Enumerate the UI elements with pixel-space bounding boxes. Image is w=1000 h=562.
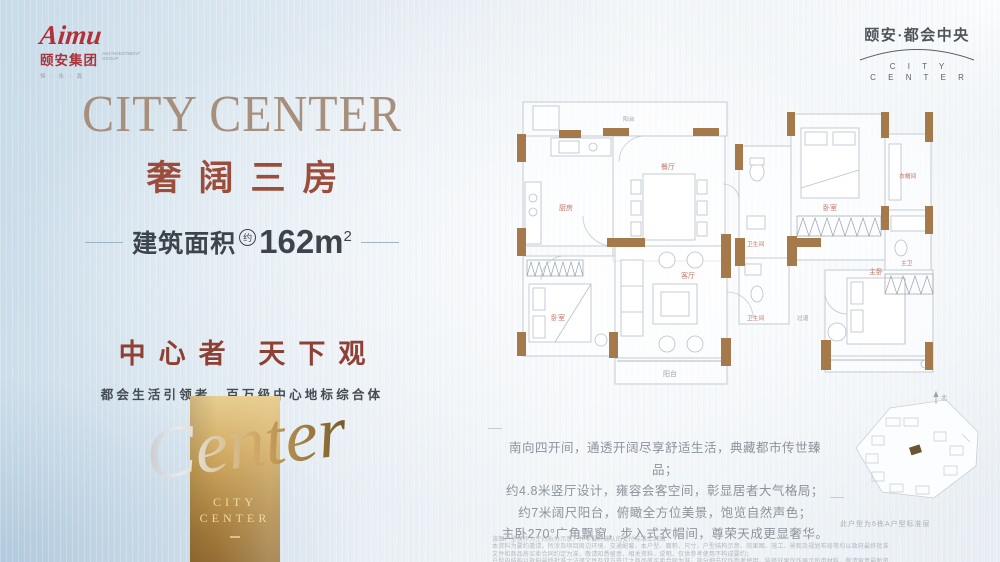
- project-name: 颐安·都会中央: [856, 24, 978, 45]
- svg-text:北: 北: [941, 394, 947, 402]
- room-label-master: 主卧: [869, 267, 883, 276]
- area-value: 162m: [259, 223, 343, 261]
- room-label-balcony: 阳台: [663, 369, 677, 378]
- divider-tick: [488, 428, 502, 429]
- disclaimer: 该图户型仅作为空间拆分示意，并非最终确认的交付标准工具图 本资料为要约邀请，所涉…: [492, 537, 894, 562]
- room-label-kitchen: 厨房: [559, 203, 573, 212]
- area-superscript: 2: [344, 228, 352, 245]
- gold-dash: [230, 536, 240, 538]
- room-label-bedroom2: 卧室: [823, 203, 837, 212]
- room-label-bedroom3: 卧室: [551, 313, 565, 322]
- siteplan-caption: 此户型为6栋A户型标准层: [840, 519, 931, 529]
- area-badge: 建筑面积 约 162m 2: [82, 223, 402, 261]
- project-name-en-1: C I T Y: [861, 61, 978, 72]
- approx-circle: 约: [239, 229, 256, 246]
- feature-line: 约7米阔尺阳台，俯瞰全方位美景，饱览自然声色；: [498, 503, 832, 525]
- arc-icon: [858, 47, 976, 61]
- disclaimer-line: 本资料为要约邀请，所涉及项目周边环境、交通配套、本户型、面积、尺寸、户型结构示意…: [492, 544, 894, 559]
- hero-subtitle: 奢阔三房: [82, 150, 402, 201]
- area-label: 建筑面积: [132, 224, 236, 260]
- project-name-en-2: C E N T E R: [861, 72, 978, 83]
- room-label-masterbath: 主卫: [901, 259, 913, 267]
- gold-card-text: CITY CENTER: [190, 494, 280, 538]
- hero-block: CITY CENTER 奢阔三房 建筑面积 约 162m 2: [82, 88, 402, 261]
- slogan: 中心者 天下观: [82, 332, 402, 371]
- feature-list: 南向四开间，通透开阔尽享舒适生活，典藏都市传世臻品； 约4.8米竖厅设计，雍容会…: [498, 438, 832, 546]
- siteplan-diagram: 北: [838, 390, 993, 516]
- badge-line-left: [85, 242, 123, 243]
- brand-name: 颐安集团: [40, 49, 98, 69]
- room-label-living: 客厅: [681, 271, 695, 280]
- room-label-dining: 餐厅: [661, 162, 675, 171]
- brand-script-logo: Aimu: [39, 22, 192, 48]
- floorplan-diagram: 阳台 厨房 餐厅 卫生间 卧室 衣帽间 主卫 卧室 客厅 阳台 过道 卫生间 主…: [495, 88, 935, 388]
- hero-title: CITY CENTER: [82, 86, 402, 144]
- feature-line: 南向四开间，通透开阔尽享舒适生活，典藏都市传世臻品；: [498, 438, 832, 481]
- project-logo: 颐安·都会中央 C I T Y C E N T E R: [856, 24, 978, 83]
- room-label-hall: 阳台: [623, 115, 635, 123]
- gold-card: CITY CENTER: [190, 396, 280, 562]
- brand-logo: Aimu 颐安集团 AIM INVESTMENTGROUP 恒 · 永 · 真: [40, 22, 190, 80]
- brand-tagline: 恒 · 永 · 真: [40, 72, 190, 80]
- poster: Aimu 颐安集团 AIM INVESTMENTGROUP 恒 · 永 · 真 …: [0, 0, 1000, 562]
- room-label-bath2: 卫生间: [747, 314, 765, 322]
- feature-line: 约4.8米竖厅设计，雍容会客空间，彰显居者大气格局；: [498, 481, 832, 503]
- brand-subtext: AIM INVESTMENTGROUP: [102, 51, 140, 61]
- room-label-closet: 衣帽间: [899, 172, 917, 180]
- badge-line-right: [361, 242, 399, 243]
- slogan-block: 中心者 天下观 都会生活引领者 百万级中心地标综合体: [82, 332, 402, 403]
- room-label-corridor: 过道: [797, 314, 809, 322]
- room-label-bath1: 卫生间: [747, 240, 765, 248]
